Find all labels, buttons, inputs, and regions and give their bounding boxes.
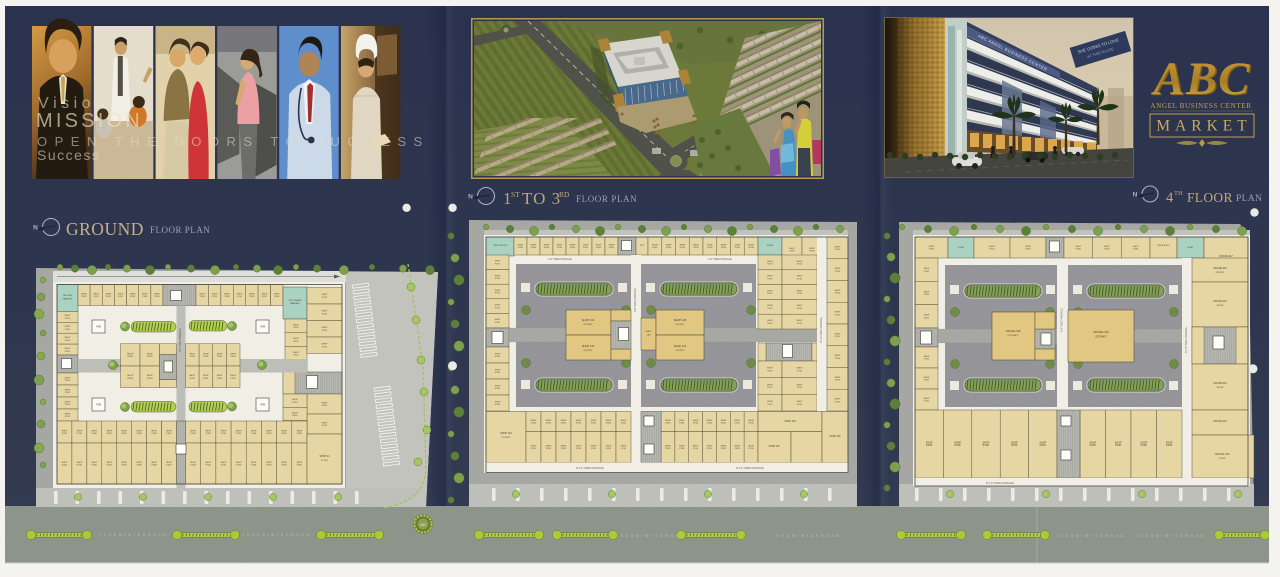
- svg-text:9'X30': 9'X30': [190, 378, 196, 380]
- svg-text:OFFICE 414: OFFICE 414: [1213, 420, 1227, 423]
- svg-text:SHOP: SHOP: [166, 430, 172, 432]
- svg-text:9'X30': 9'X30': [147, 356, 154, 358]
- svg-text:SHOP: SHOP: [561, 420, 567, 422]
- svg-text:SHOP: SHOP: [835, 312, 841, 314]
- svg-text:SHOP: SHOP: [666, 244, 672, 246]
- svg-text:SHOP: SHOP: [797, 261, 803, 263]
- svg-text:9'X10': 9'X10': [924, 318, 930, 320]
- svg-text:SHOP: SHOP: [531, 445, 537, 447]
- svg-text:9'X30': 9'X30': [249, 296, 255, 298]
- svg-text:9'X10': 9'X10': [767, 293, 773, 295]
- svg-text:SHOP: SHOP: [797, 276, 803, 278]
- svg-text:SHOP: SHOP: [249, 293, 255, 295]
- svg-text:SHOP: SHOP: [322, 294, 328, 296]
- svg-text:TOILET: TOILET: [958, 247, 966, 249]
- svg-text:9'X30': 9'X30': [721, 448, 727, 450]
- svg-text:SHOP: SHOP: [989, 246, 995, 248]
- svg-text:9'X30': 9'X30': [591, 448, 597, 450]
- svg-text:9'X30': 9'X30': [154, 296, 160, 298]
- svg-text:SHOP: SHOP: [929, 246, 935, 248]
- svg-text:OFFICE 416: OFFICE 416: [1213, 300, 1227, 303]
- svg-text:9'X30': 9'X30': [221, 465, 227, 467]
- svg-text:9'X10': 9'X10': [797, 323, 803, 325]
- svg-text:SHOP: SHOP: [65, 413, 71, 415]
- svg-text:9'X30': 9'X30': [665, 423, 671, 425]
- svg-text:SHOP: SHOP: [147, 353, 154, 355]
- svg-text:9'X30': 9'X30': [217, 356, 223, 358]
- svg-text:SHOP: SHOP: [293, 324, 299, 326]
- svg-text:1 5 S Q M I W I D E R O: 1 5 S Q M I W I D E R O A D: [99, 533, 166, 537]
- svg-text:SHOP: SHOP: [721, 244, 727, 246]
- svg-text:SHOP: SHOP: [262, 293, 268, 295]
- svg-text:TOILET: TOILET: [767, 245, 775, 247]
- svg-text:9'X30': 9'X30': [230, 378, 236, 380]
- svg-text:SHOP: SHOP: [767, 401, 773, 403]
- svg-text:9'X30': 9'X30': [621, 423, 627, 425]
- svg-text:SHOP: SHOP: [205, 462, 211, 464]
- svg-text:9'X10': 9'X10': [322, 425, 328, 427]
- svg-text:SHOP: SHOP: [151, 430, 157, 432]
- svg-text:9'X10': 9'X10': [767, 308, 773, 310]
- svg-text:9'X30': 9'X30': [127, 356, 134, 358]
- svg-text:9'X10': 9'X10': [292, 415, 298, 417]
- svg-text:6'-0" WIDE PASSAGE: 6'-0" WIDE PASSAGE: [548, 258, 572, 261]
- svg-text:9'X10': 9'X10': [495, 264, 501, 266]
- svg-text:9'X10': 9'X10': [767, 264, 773, 266]
- svg-text:9'X10': 9'X10': [767, 371, 773, 373]
- svg-text:ATM: ATM: [96, 404, 101, 407]
- svg-text:SHOP: SHOP: [576, 420, 582, 422]
- svg-text:SHOP: SHOP: [495, 369, 501, 371]
- svg-text:SHOP: SHOP: [734, 420, 740, 422]
- svg-text:SHOP: SHOP: [127, 353, 134, 355]
- svg-text:9'X30': 9'X30': [591, 423, 597, 425]
- svg-text:9'X10': 9'X10': [292, 402, 298, 404]
- svg-text:9'X10': 9'X10': [293, 327, 299, 329]
- svg-text:OFFICE 418: OFFICE 418: [1006, 329, 1021, 333]
- svg-text:SHOP: SHOP: [546, 445, 552, 447]
- svg-text:9'X10': 9'X10': [495, 293, 501, 295]
- svg-text:9'X30': 9'X30': [203, 356, 209, 358]
- svg-text:9'X30': 9'X30': [1011, 444, 1018, 447]
- svg-text:9'X30': 9'X30': [166, 433, 172, 435]
- svg-text:SHOP: SHOP: [835, 333, 841, 335]
- svg-text:9'X10': 9'X10': [495, 356, 501, 358]
- svg-text:SHOP: SHOP: [65, 326, 71, 328]
- svg-text:8'-1.5" WIDE PASSAGE: 8'-1.5" WIDE PASSAGE: [736, 466, 764, 470]
- svg-text:9'X30': 9'X30': [237, 296, 243, 298]
- svg-text:SHOP: SHOP: [65, 348, 71, 350]
- svg-text:9'X30': 9'X30': [107, 465, 113, 467]
- svg-text:SHOP: SHOP: [531, 244, 537, 246]
- svg-text:9'X10': 9'X10': [495, 372, 501, 374]
- svg-text:SHOP: SHOP: [518, 244, 524, 246]
- svg-text:8'-0" WIDE PASSAGE: 8'-0" WIDE PASSAGE: [1061, 308, 1064, 332]
- svg-text:9'X30': 9'X30': [1141, 444, 1148, 447]
- svg-text:9'X10': 9'X10': [322, 405, 328, 407]
- svg-text:9'X30': 9'X30': [266, 433, 272, 435]
- svg-text:SHOP: SHOP: [190, 430, 196, 432]
- svg-text:9'X30': 9'X30': [142, 296, 148, 298]
- svg-text:21'9"X64'3": 21'9"X64'3": [1007, 335, 1018, 337]
- svg-text:OFFICE 412: OFFICE 412: [1157, 245, 1170, 247]
- svg-text:1 5 S Q M I W I D E R O: 1 5 S Q M I W I D E R O A D: [242, 533, 309, 537]
- svg-text:9'X30': 9'X30': [1115, 444, 1122, 447]
- svg-text:9'X30': 9'X30': [609, 247, 615, 249]
- svg-text:SHOP: SHOP: [266, 430, 272, 432]
- svg-text:19'X32'6": 19'X32'6": [675, 350, 684, 352]
- svg-text:9'X10': 9'X10': [322, 346, 328, 348]
- svg-text:9'X30': 9'X30': [707, 448, 713, 450]
- svg-text:9'X30': 9'X30': [621, 448, 627, 450]
- svg-text:FLOOR PLAN: FLOOR PLAN: [150, 225, 210, 235]
- svg-text:9'X30': 9'X30': [1166, 444, 1173, 447]
- svg-text:8'-1.5" WIDE PASSAGE: 8'-1.5" WIDE PASSAGE: [576, 466, 604, 470]
- svg-text:OFFICE 415: OFFICE 415: [1213, 382, 1227, 385]
- svg-text:SHOP: SHOP: [924, 268, 930, 270]
- svg-text:9'X10': 9'X10': [835, 249, 841, 251]
- svg-text:28'X32'6": 28'X32'6": [1215, 272, 1224, 274]
- svg-text:MARKET: MARKET: [1156, 118, 1251, 135]
- svg-text:SHOP: SHOP: [924, 398, 930, 400]
- svg-text:9'X10': 9'X10': [797, 293, 803, 295]
- svg-text:8'-1.5" WIDE PASSAGE: 8'-1.5" WIDE PASSAGE: [820, 317, 823, 343]
- svg-text:ATM: ATM: [260, 326, 265, 329]
- svg-text:SHOP: SHOP: [237, 293, 243, 295]
- svg-text:SHOP: SHOP: [121, 462, 127, 464]
- svg-text:SHOP: SHOP: [835, 290, 841, 292]
- svg-text:9'X10': 9'X10': [293, 355, 299, 357]
- svg-text:SHOP: SHOP: [835, 399, 841, 401]
- svg-text:SHOP: SHOP: [91, 430, 97, 432]
- svg-text:TO 3: TO 3: [522, 189, 561, 208]
- svg-text:9'X30': 9'X30': [121, 433, 127, 435]
- svg-text:9'X10': 9'X10': [924, 401, 930, 403]
- svg-text:SHOP: SHOP: [693, 244, 699, 246]
- svg-text:OFFICE 423: OFFICE 423: [1093, 330, 1109, 334]
- svg-text:SHOP: SHOP: [251, 430, 257, 432]
- svg-text:SHOP: SHOP: [835, 355, 841, 357]
- svg-text:SHOP: SHOP: [203, 353, 209, 355]
- svg-text:9'X10': 9'X10': [65, 351, 71, 353]
- svg-text:SHOP: SHOP: [217, 353, 223, 355]
- svg-text:28'X45': 28'X45': [1216, 305, 1224, 307]
- svg-text:SHOP: SHOP: [748, 420, 754, 422]
- svg-text:SHOP: SHOP: [322, 422, 328, 424]
- svg-text:SHOP: SHOP: [1104, 246, 1110, 248]
- svg-text:TOILET BLOCK: TOILET BLOCK: [493, 245, 508, 247]
- svg-text:SHOP: SHOP: [924, 315, 930, 317]
- svg-text:SHOP: SHOP: [322, 344, 328, 346]
- svg-text:SHOP: SHOP: [65, 389, 71, 391]
- svg-text:9'X30': 9'X30': [107, 433, 113, 435]
- svg-text:9'X10': 9'X10': [495, 278, 501, 280]
- svg-text:9'X30': 9'X30': [203, 378, 209, 380]
- svg-text:SHOP 147: SHOP 147: [674, 344, 687, 348]
- svg-text:SHOP: SHOP: [570, 244, 576, 246]
- svg-text:ABC: ABC: [1150, 53, 1250, 105]
- svg-text:SHOP: SHOP: [292, 412, 298, 414]
- svg-text:9'X10': 9'X10': [495, 388, 501, 390]
- svg-text:9'X10': 9'X10': [65, 416, 71, 418]
- svg-text:8'-0" WIDE PASSAGE: 8'-0" WIDE PASSAGE: [179, 328, 182, 352]
- svg-text:9'X10': 9'X10': [495, 404, 501, 406]
- svg-text:9'X30': 9'X30': [748, 247, 754, 249]
- svg-text:FLOOR PLAN: FLOOR PLAN: [576, 194, 637, 204]
- svg-text:SHOP: SHOP: [835, 268, 841, 270]
- svg-text:9'X30': 9'X30': [789, 251, 795, 253]
- svg-text:SHOP: SHOP: [65, 337, 71, 339]
- svg-text:19'X32'6": 19'X32'6": [583, 324, 592, 326]
- svg-text:SHOP: SHOP: [797, 290, 803, 292]
- svg-text:9'X30': 9'X30': [1025, 249, 1031, 251]
- svg-text:SHOP: SHOP: [62, 462, 68, 464]
- svg-text:SHOP: SHOP: [645, 331, 652, 333]
- svg-text:SHOP: SHOP: [495, 305, 501, 307]
- svg-text:9'X30': 9'X30': [518, 247, 524, 249]
- svg-text:9'X30': 9'X30': [557, 247, 563, 249]
- svg-text:SHOP: SHOP: [65, 401, 71, 403]
- svg-text:SHOP: SHOP: [797, 320, 803, 322]
- svg-text:9'X30': 9'X30': [221, 433, 227, 435]
- svg-text:1 5 S Q M I W I D E R O: 1 5 S Q M I W I D E R O A D: [1136, 534, 1203, 538]
- svg-text:SHOP: SHOP: [130, 293, 136, 295]
- svg-text:SHOP: SHOP: [212, 293, 218, 295]
- svg-text:9'X30': 9'X30': [1104, 249, 1110, 251]
- svg-text:1 5 S Q M I W I D E R O: 1 5 S Q M I W I D E R O A D: [616, 534, 683, 538]
- svg-text:PARKING: PARKING: [290, 302, 300, 305]
- svg-text:9'X30': 9'X30': [680, 247, 686, 249]
- svg-text:9'X10': 9'X10': [767, 278, 773, 280]
- svg-text:SHOP: SHOP: [693, 445, 699, 447]
- svg-text:9'X30': 9'X30': [1090, 444, 1097, 447]
- svg-text:TWO WH.: TWO WH.: [63, 295, 73, 297]
- svg-text:9'X30': 9'X30': [734, 423, 740, 425]
- svg-text:SHOP: SHOP: [721, 420, 727, 422]
- svg-text:SHOP: SHOP: [767, 261, 773, 263]
- svg-text:SHOP: SHOP: [495, 385, 501, 387]
- svg-text:MISSION: MISSION: [36, 110, 143, 132]
- svg-text:9'X10': 9'X10': [767, 404, 773, 406]
- svg-text:9'X10': 9'X10': [797, 308, 803, 310]
- svg-text:9'X30': 9'X30': [266, 465, 272, 467]
- svg-text:SHOP: SHOP: [767, 305, 773, 307]
- svg-text:9'X10': 9'X10': [797, 404, 803, 406]
- svg-text:9'X30': 9'X30': [230, 356, 236, 358]
- svg-text:9'X30': 9'X30': [544, 247, 550, 249]
- svg-text:9'X10': 9'X10': [835, 401, 841, 403]
- svg-text:SHOP: SHOP: [274, 293, 280, 295]
- svg-text:9'X30': 9'X30': [281, 465, 287, 467]
- svg-text:SHOP: SHOP: [544, 244, 550, 246]
- svg-text:N: N: [33, 225, 38, 232]
- svg-text:PARKING: PARKING: [63, 298, 73, 301]
- svg-text:9'X10': 9'X10': [322, 330, 328, 332]
- svg-text:9'X10': 9'X10': [797, 278, 803, 280]
- svg-text:SHOP: SHOP: [495, 319, 501, 321]
- svg-text:9'X10': 9'X10': [65, 404, 71, 406]
- svg-text:9'X30': 9'X30': [666, 247, 672, 249]
- svg-text:9'X30': 9'X30': [199, 296, 205, 298]
- svg-text:31'X43': 31'X43': [1218, 458, 1226, 460]
- svg-text:9'X30': 9'X30': [561, 423, 567, 425]
- svg-text:9'X30': 9'X30': [606, 423, 612, 425]
- svg-text:9'X30': 9'X30': [561, 448, 567, 450]
- svg-text:SHOP 146: SHOP 146: [582, 344, 595, 348]
- svg-text:9'X10': 9'X10': [797, 387, 803, 389]
- svg-text:SHOP: SHOP: [189, 375, 195, 377]
- svg-text:SHOP: SHOP: [606, 420, 612, 422]
- svg-text:ST: ST: [511, 190, 520, 199]
- svg-text:SHOP: SHOP: [91, 462, 97, 464]
- svg-text:9'X30': 9'X30': [166, 465, 172, 467]
- svg-text:9'X30': 9'X30': [151, 465, 157, 467]
- svg-text:SHOP: SHOP: [707, 420, 713, 422]
- svg-text:9'X10': 9'X10': [835, 336, 841, 338]
- svg-text:9'X30': 9'X30': [546, 423, 552, 425]
- svg-text:9'X30': 9'X30': [224, 296, 230, 298]
- svg-text:SHOP: SHOP: [322, 311, 328, 313]
- svg-text:SHOP: SHOP: [797, 368, 803, 370]
- svg-text:9'X10': 9'X10': [293, 341, 299, 343]
- svg-text:9'X30': 9'X30': [251, 433, 257, 435]
- svg-text:TH: TH: [1174, 190, 1183, 197]
- svg-text:9'X30': 9'X30': [92, 465, 98, 467]
- svg-text:9'X10': 9'X10': [924, 271, 930, 273]
- svg-text:9'X30': 9'X30': [106, 296, 112, 298]
- svg-text:9'X10': 9'X10': [924, 359, 930, 361]
- svg-text:27'X30'6": 27'X30'6": [501, 437, 510, 439]
- svg-text:SHOP: SHOP: [679, 420, 685, 422]
- svg-text:SHOP: SHOP: [166, 462, 172, 464]
- svg-text:SHOP: SHOP: [77, 430, 83, 432]
- svg-text:SHOP: SHOP: [151, 462, 157, 464]
- svg-text:9'X10': 9'X10': [835, 293, 841, 295]
- svg-text:SHOP: SHOP: [1133, 246, 1139, 248]
- svg-text:9'X30': 9'X30': [190, 465, 196, 467]
- svg-text:9'X10': 9'X10': [65, 340, 71, 342]
- svg-text:SHOP: SHOP: [591, 445, 597, 447]
- svg-text:SHOP: SHOP: [924, 356, 930, 358]
- svg-text:SHOP: SHOP: [495, 401, 501, 403]
- svg-text:SHOP: SHOP: [136, 430, 142, 432]
- svg-text:9'X10': 9'X10': [65, 318, 71, 320]
- svg-text:SHOP: SHOP: [621, 445, 627, 447]
- svg-text:ATM: ATM: [96, 326, 101, 329]
- svg-text:TWO WHEEL: TWO WHEEL: [288, 300, 302, 302]
- svg-text:SHOP: SHOP: [121, 430, 127, 432]
- svg-text:GROUND: GROUND: [66, 219, 144, 239]
- svg-text:9'X10': 9'X10': [797, 264, 803, 266]
- svg-text:SHOP: SHOP: [189, 353, 195, 355]
- svg-text:9'X10': 9'X10': [924, 380, 930, 382]
- svg-text:SHOP: SHOP: [734, 445, 740, 447]
- svg-text:19'X32'6": 19'X32'6": [675, 324, 684, 326]
- svg-text:N: N: [468, 194, 473, 201]
- svg-text:SHOP: SHOP: [154, 293, 160, 295]
- svg-text:SHOP: SHOP: [576, 445, 582, 447]
- svg-text:TOILET: TOILET: [1187, 247, 1195, 249]
- svg-text:9'X30': 9'X30': [236, 465, 242, 467]
- svg-text:ABC: ABC: [420, 523, 427, 527]
- svg-text:SHOP: SHOP: [924, 291, 930, 293]
- svg-text:9'X10': 9'X10': [767, 387, 773, 389]
- svg-text:SHOP: SHOP: [835, 377, 841, 379]
- svg-text:9'X30': 9'X30': [546, 448, 552, 450]
- svg-text:9'X30': 9'X30': [1040, 444, 1047, 447]
- svg-text:SHOP: SHOP: [748, 445, 754, 447]
- svg-text:9'X10': 9'X10': [835, 271, 841, 273]
- svg-text:9'X30': 9'X30': [652, 247, 658, 249]
- svg-text:SHOP: SHOP: [767, 320, 773, 322]
- svg-text:PLAN: PLAN: [1236, 194, 1262, 204]
- svg-text:32'9"X64'3": 32'9"X64'3": [1095, 337, 1107, 339]
- svg-text:9'X30': 9'X30': [721, 247, 727, 249]
- svg-text:9'X30': 9'X30': [954, 444, 961, 447]
- svg-text:SHOP: SHOP: [297, 430, 303, 432]
- svg-text:9'X30': 9'X30': [281, 433, 287, 435]
- svg-text:9'X30': 9'X30': [809, 251, 815, 253]
- svg-text:9'X10': 9'X10': [767, 323, 773, 325]
- svg-text:9'X30': 9'X30': [190, 356, 196, 358]
- svg-text:9'X30': 9'X30': [989, 249, 995, 251]
- svg-text:SHOP: SHOP: [106, 462, 112, 464]
- svg-text:9'X10': 9'X10': [835, 380, 841, 382]
- svg-text:SHOP: SHOP: [292, 399, 298, 401]
- svg-text:OFFICE 417: OFFICE 417: [1219, 255, 1233, 258]
- svg-text:9'X30': 9'X30': [62, 433, 68, 435]
- svg-text:9'X30': 9'X30': [92, 433, 98, 435]
- svg-text:8'-1.5" WIDE PASSAGE: 8'-1.5" WIDE PASSAGE: [986, 481, 1014, 485]
- svg-text:SHOP: SHOP: [609, 244, 615, 246]
- svg-text:9'X30': 9'X30': [77, 465, 83, 467]
- svg-text:9'X30': 9'X30': [693, 247, 699, 249]
- svg-text:SHOP: SHOP: [281, 462, 287, 464]
- svg-text:9'X10': 9'X10': [322, 297, 328, 299]
- svg-text:9'X30': 9'X30': [297, 465, 303, 467]
- svg-text:ATM: ATM: [260, 404, 265, 407]
- svg-text:8'-0" WIDE PASSAGE: 8'-0" WIDE PASSAGE: [634, 288, 637, 312]
- svg-text:9'X30': 9'X30': [190, 433, 196, 435]
- svg-text:SHOP: SHOP: [767, 368, 773, 370]
- svg-text:SHOP: SHOP: [199, 293, 205, 295]
- svg-text:9'X30': 9'X30': [206, 465, 212, 467]
- svg-text:27'X30': 27'X30': [321, 460, 329, 462]
- svg-text:SHOP: SHOP: [205, 430, 211, 432]
- svg-text:9'X30': 9'X30': [693, 423, 699, 425]
- svg-text:SHOP: SHOP: [797, 305, 803, 307]
- svg-text:1 5 S Q M I W I D E R O: 1 5 S Q M I W I D E R O A D: [1056, 534, 1123, 538]
- svg-text:SHOP 134: SHOP 134: [500, 432, 512, 435]
- svg-text:9'X10': 9'X10': [797, 371, 803, 373]
- svg-text:9'X30': 9'X30': [679, 423, 685, 425]
- svg-text:9'X30': 9'X30': [926, 444, 933, 447]
- svg-text:ANGEL BUSINESS CENTER: ANGEL BUSINESS CENTER: [1150, 102, 1251, 110]
- svg-text:SHOP: SHOP: [680, 244, 686, 246]
- svg-text:SHOP: SHOP: [106, 430, 112, 432]
- svg-text:SHOP: SHOP: [707, 244, 713, 246]
- svg-text:9'X30': 9'X30': [236, 433, 242, 435]
- svg-text:SHOP: SHOP: [495, 261, 501, 263]
- svg-text:9'X30': 9'X30': [81, 296, 87, 298]
- svg-text:9'X30': 9'X30': [606, 448, 612, 450]
- svg-text:9'X30': 9'X30': [118, 296, 124, 298]
- svg-text:SHOP: SHOP: [1025, 246, 1031, 248]
- svg-text:SHOP: SHOP: [748, 244, 754, 246]
- svg-text:SHOP: SHOP: [203, 375, 209, 377]
- svg-text:9'X10': 9'X10': [65, 380, 71, 382]
- svg-text:9'X30': 9'X30': [748, 423, 754, 425]
